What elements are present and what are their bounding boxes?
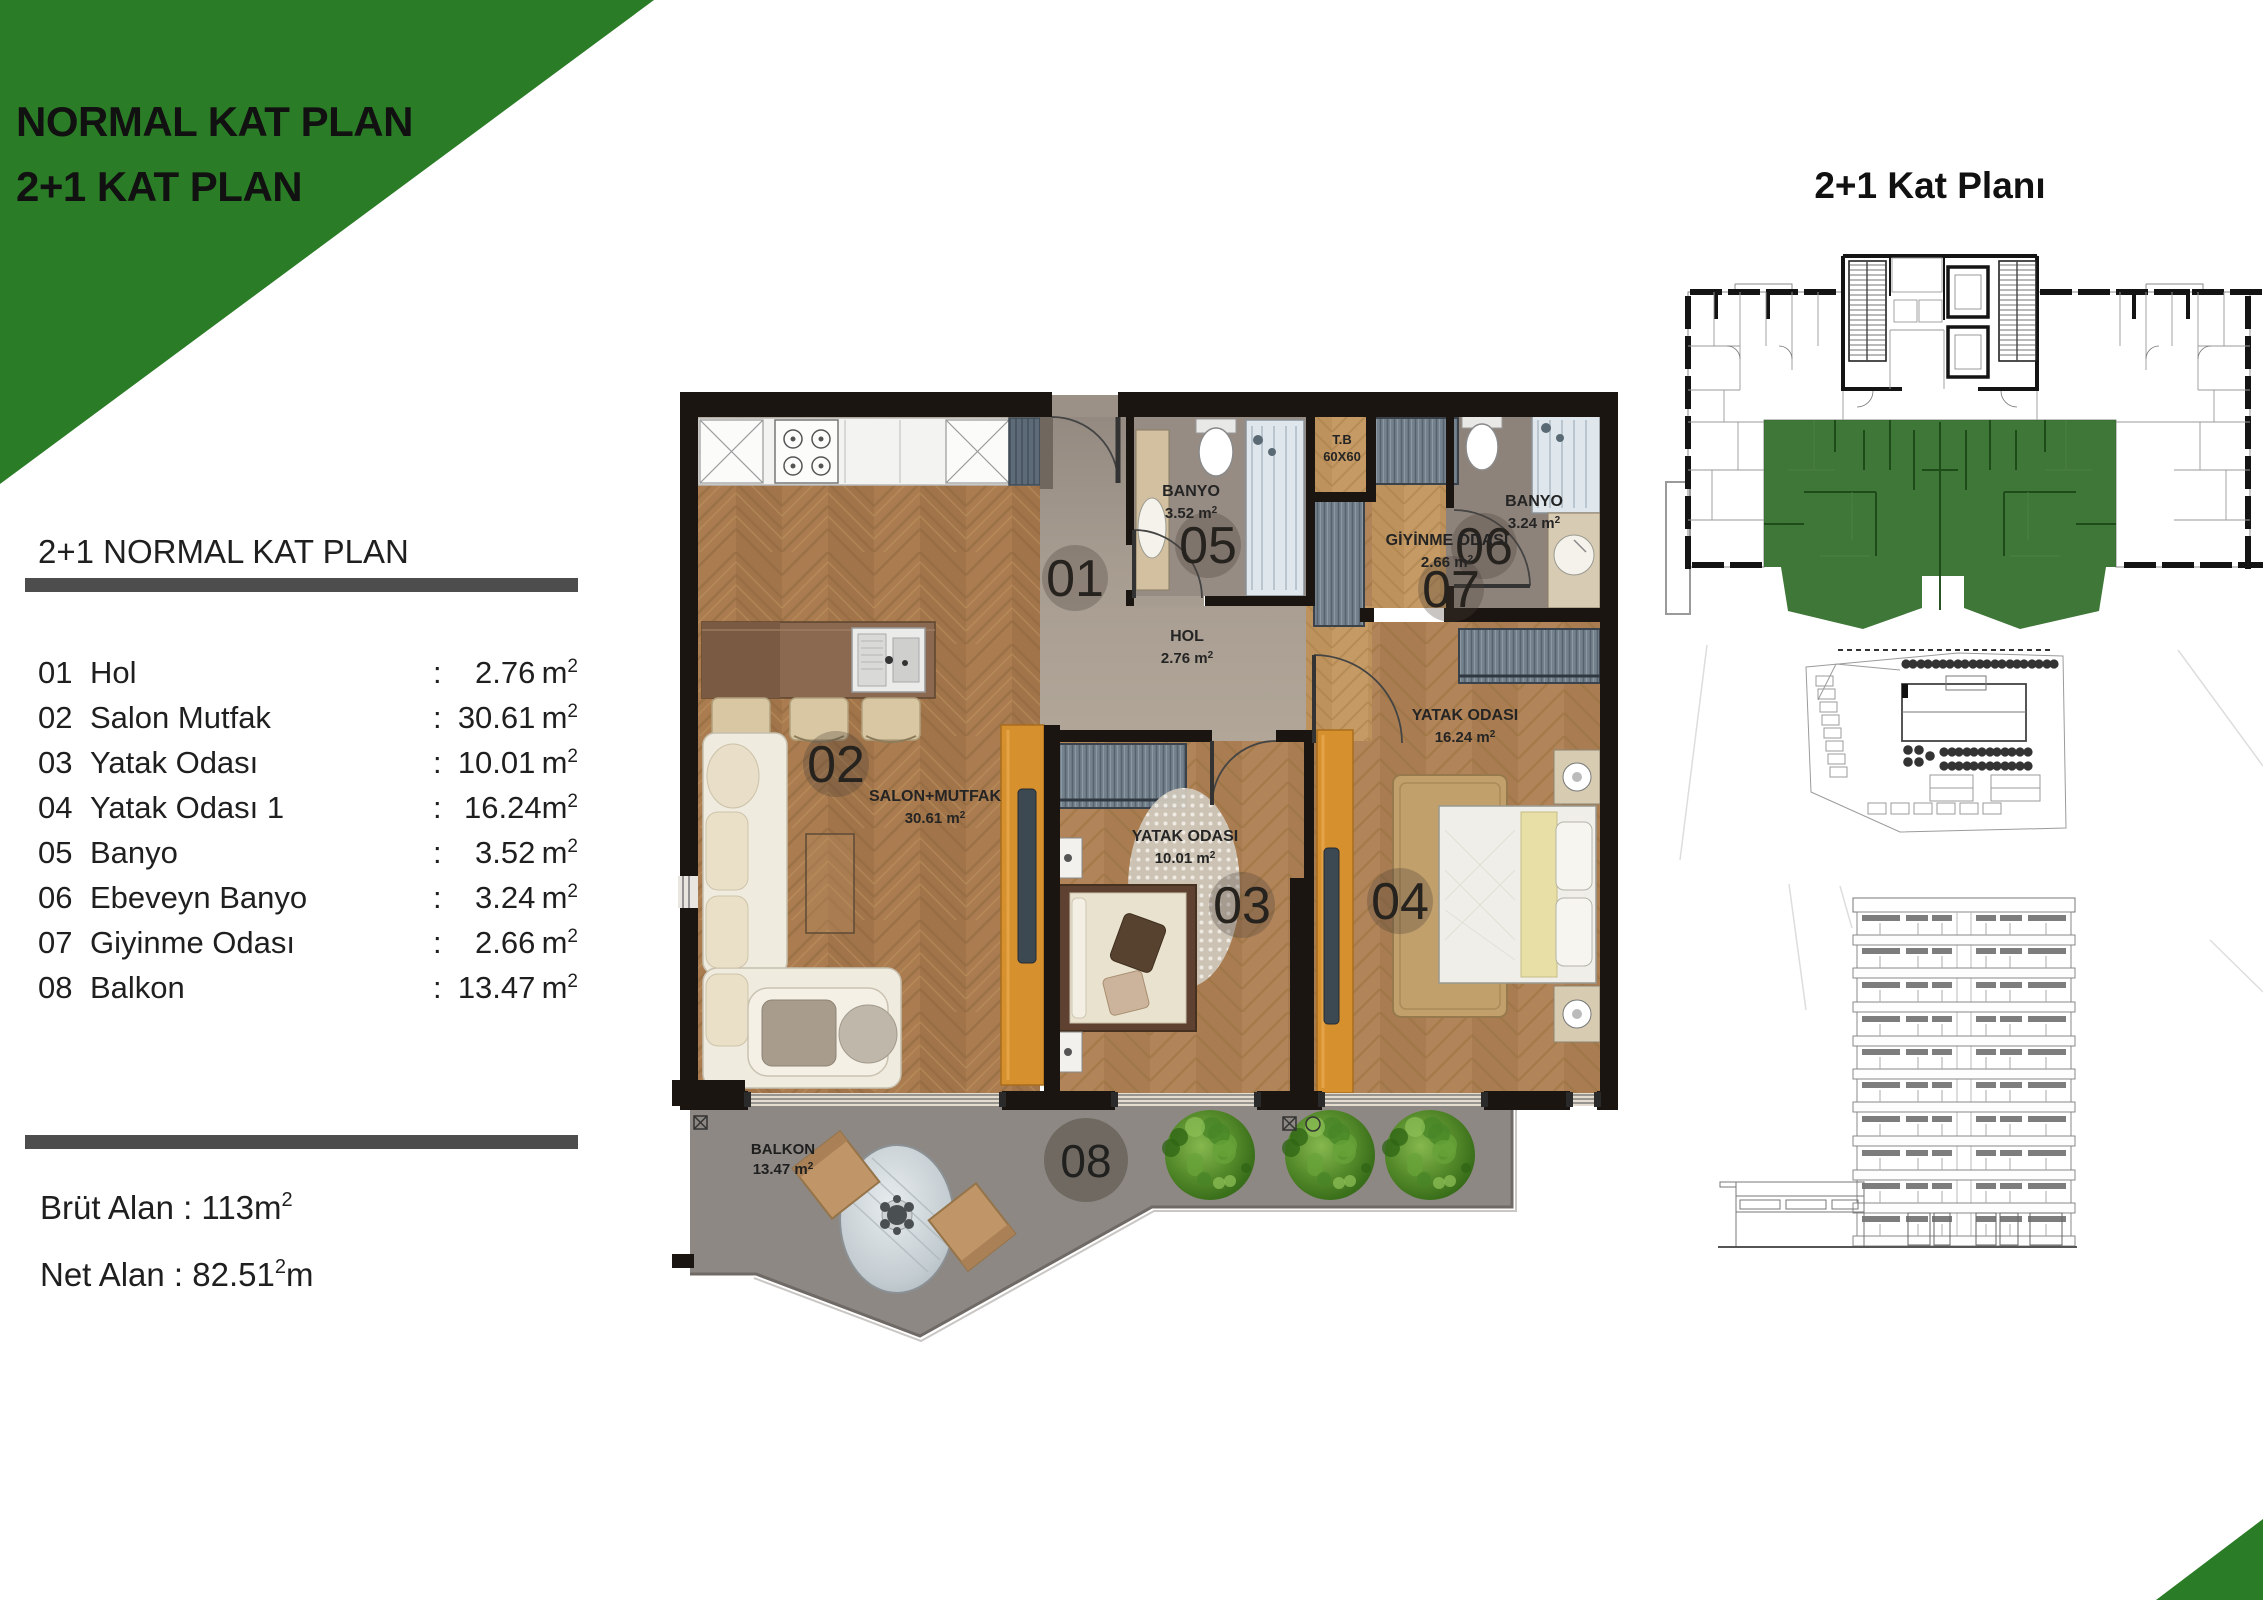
- svg-text:04: 04: [1371, 873, 1429, 931]
- svg-text:04: 04: [38, 790, 72, 825]
- svg-text::: :: [433, 790, 442, 825]
- svg-text::: :: [433, 745, 442, 780]
- svg-text:08: 08: [38, 970, 72, 1005]
- svg-text:Ebeveyn Banyo: Ebeveyn Banyo: [90, 880, 307, 915]
- svg-text:3.52 m2: 3.52 m2: [1165, 505, 1218, 522]
- svg-text:30.61 m2: 30.61 m2: [905, 810, 966, 827]
- svg-text:2+1 Kat Planı: 2+1 Kat Planı: [1814, 165, 2045, 206]
- svg-text:10.01 m2: 10.01 m2: [1155, 850, 1216, 867]
- svg-text:2.76 m2: 2.76 m2: [475, 655, 578, 690]
- svg-text::: :: [433, 655, 442, 690]
- svg-text:Banyo: Banyo: [90, 835, 178, 870]
- svg-text:3.52 m2: 3.52 m2: [475, 835, 578, 870]
- svg-text:Yatak Odası 1: Yatak Odası 1: [90, 790, 284, 825]
- svg-text:YATAK ODASI: YATAK ODASI: [1132, 828, 1238, 845]
- svg-text:Balkon: Balkon: [90, 970, 185, 1005]
- svg-text:Salon Mutfak: Salon Mutfak: [90, 700, 271, 735]
- svg-text:SALON+MUTFAK: SALON+MUTFAK: [869, 788, 1001, 805]
- svg-text:02: 02: [807, 736, 865, 794]
- svg-text::: :: [433, 835, 442, 870]
- svg-text:Brüt Alan : 113m2: Brüt Alan : 113m2: [40, 1189, 293, 1226]
- svg-text:2.66 m2: 2.66 m2: [475, 925, 578, 960]
- svg-text:07: 07: [38, 925, 72, 960]
- svg-text::: :: [433, 970, 442, 1005]
- svg-text:03: 03: [1213, 877, 1271, 935]
- svg-text:GİYİNME ODASI: GİYİNME ODASI: [1386, 531, 1509, 549]
- svg-text:2+1 NORMAL KAT PLAN: 2+1 NORMAL KAT PLAN: [38, 533, 409, 570]
- svg-text:10.01 m2: 10.01 m2: [458, 745, 578, 780]
- svg-text:60X60: 60X60: [1323, 449, 1361, 464]
- svg-text:30.61 m2: 30.61 m2: [458, 700, 578, 735]
- svg-text:Yatak Odası: Yatak Odası: [90, 745, 258, 780]
- svg-text::: :: [433, 925, 442, 960]
- svg-text:Net Alan : 82.512m: Net Alan : 82.512m: [40, 1256, 313, 1293]
- svg-text:05: 05: [1179, 517, 1237, 575]
- svg-text:3.24 m2: 3.24 m2: [475, 880, 578, 915]
- svg-text:YATAK ODASI: YATAK ODASI: [1412, 707, 1518, 724]
- svg-text:3.24 m2: 3.24 m2: [1508, 515, 1561, 532]
- svg-text:01: 01: [1046, 550, 1104, 608]
- svg-text:2+1 KAT PLAN: 2+1 KAT PLAN: [16, 163, 302, 210]
- svg-text:BANYO: BANYO: [1162, 483, 1220, 500]
- svg-text:03: 03: [38, 745, 72, 780]
- svg-text::: :: [433, 700, 442, 735]
- svg-text:BALKON: BALKON: [751, 1141, 815, 1158]
- svg-text::: :: [433, 880, 442, 915]
- svg-text:02: 02: [38, 700, 72, 735]
- svg-text:13.47 m2: 13.47 m2: [753, 1161, 814, 1178]
- svg-text:T.B: T.B: [1332, 432, 1352, 447]
- svg-text:2.76 m2: 2.76 m2: [1161, 650, 1214, 667]
- svg-text:01: 01: [38, 655, 72, 690]
- svg-text:Giyinme Odası: Giyinme Odası: [90, 925, 295, 960]
- svg-text:Hol: Hol: [90, 655, 137, 690]
- svg-text:NORMAL KAT PLAN: NORMAL KAT PLAN: [16, 98, 413, 145]
- svg-text:HOL: HOL: [1170, 628, 1204, 645]
- svg-text:13.47 m2: 13.47 m2: [458, 970, 578, 1005]
- svg-text:2.66 m2: 2.66 m2: [1421, 554, 1474, 571]
- svg-text:BANYO: BANYO: [1505, 493, 1563, 510]
- svg-text:05: 05: [38, 835, 72, 870]
- svg-text:16.24 m2: 16.24 m2: [1435, 729, 1496, 746]
- svg-text:16.24m2: 16.24m2: [464, 790, 578, 825]
- svg-text:06: 06: [38, 880, 72, 915]
- svg-text:08: 08: [1060, 1135, 1111, 1187]
